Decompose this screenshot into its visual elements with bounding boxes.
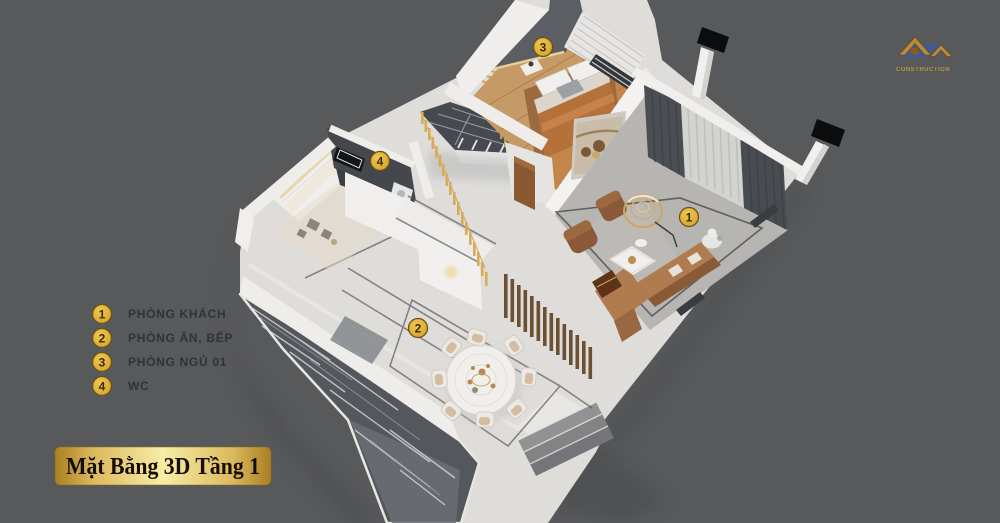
svg-text:4: 4 — [99, 380, 106, 394]
svg-text:WC: WC — [128, 379, 149, 393]
svg-text:PHÒNG ĂN, BẾP: PHÒNG ĂN, BẾP — [128, 330, 233, 345]
svg-text:CONSTRUCTION: CONSTRUCTION — [896, 67, 950, 73]
svg-text:2: 2 — [99, 332, 106, 346]
svg-text:3: 3 — [99, 356, 106, 370]
svg-text:PHÒNG NGỦ 01: PHÒNG NGỦ 01 — [128, 354, 227, 369]
svg-text:2: 2 — [415, 322, 422, 336]
svg-text:Mặt Bằng 3D Tầng 1: Mặt Bằng 3D Tầng 1 — [66, 454, 260, 480]
svg-text:3: 3 — [540, 41, 547, 55]
svg-text:1: 1 — [686, 211, 693, 225]
svg-text:1: 1 — [99, 308, 106, 322]
svg-text:PHÒNG KHÁCH: PHÒNG KHÁCH — [128, 306, 226, 321]
svg-text:4: 4 — [377, 155, 384, 169]
